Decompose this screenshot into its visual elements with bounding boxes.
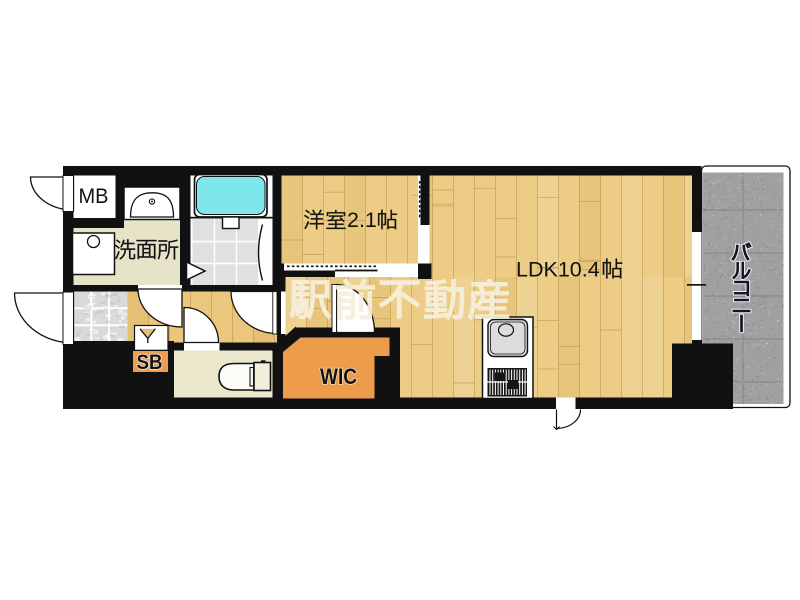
svg-text:LDK10.4: LDK10.4 (516, 258, 600, 282)
svg-text:SB: SB (137, 351, 163, 374)
svg-text:MB: MB (79, 185, 109, 208)
svg-text:WIC: WIC (320, 364, 357, 389)
svg-text:2.1: 2.1 (347, 208, 377, 232)
